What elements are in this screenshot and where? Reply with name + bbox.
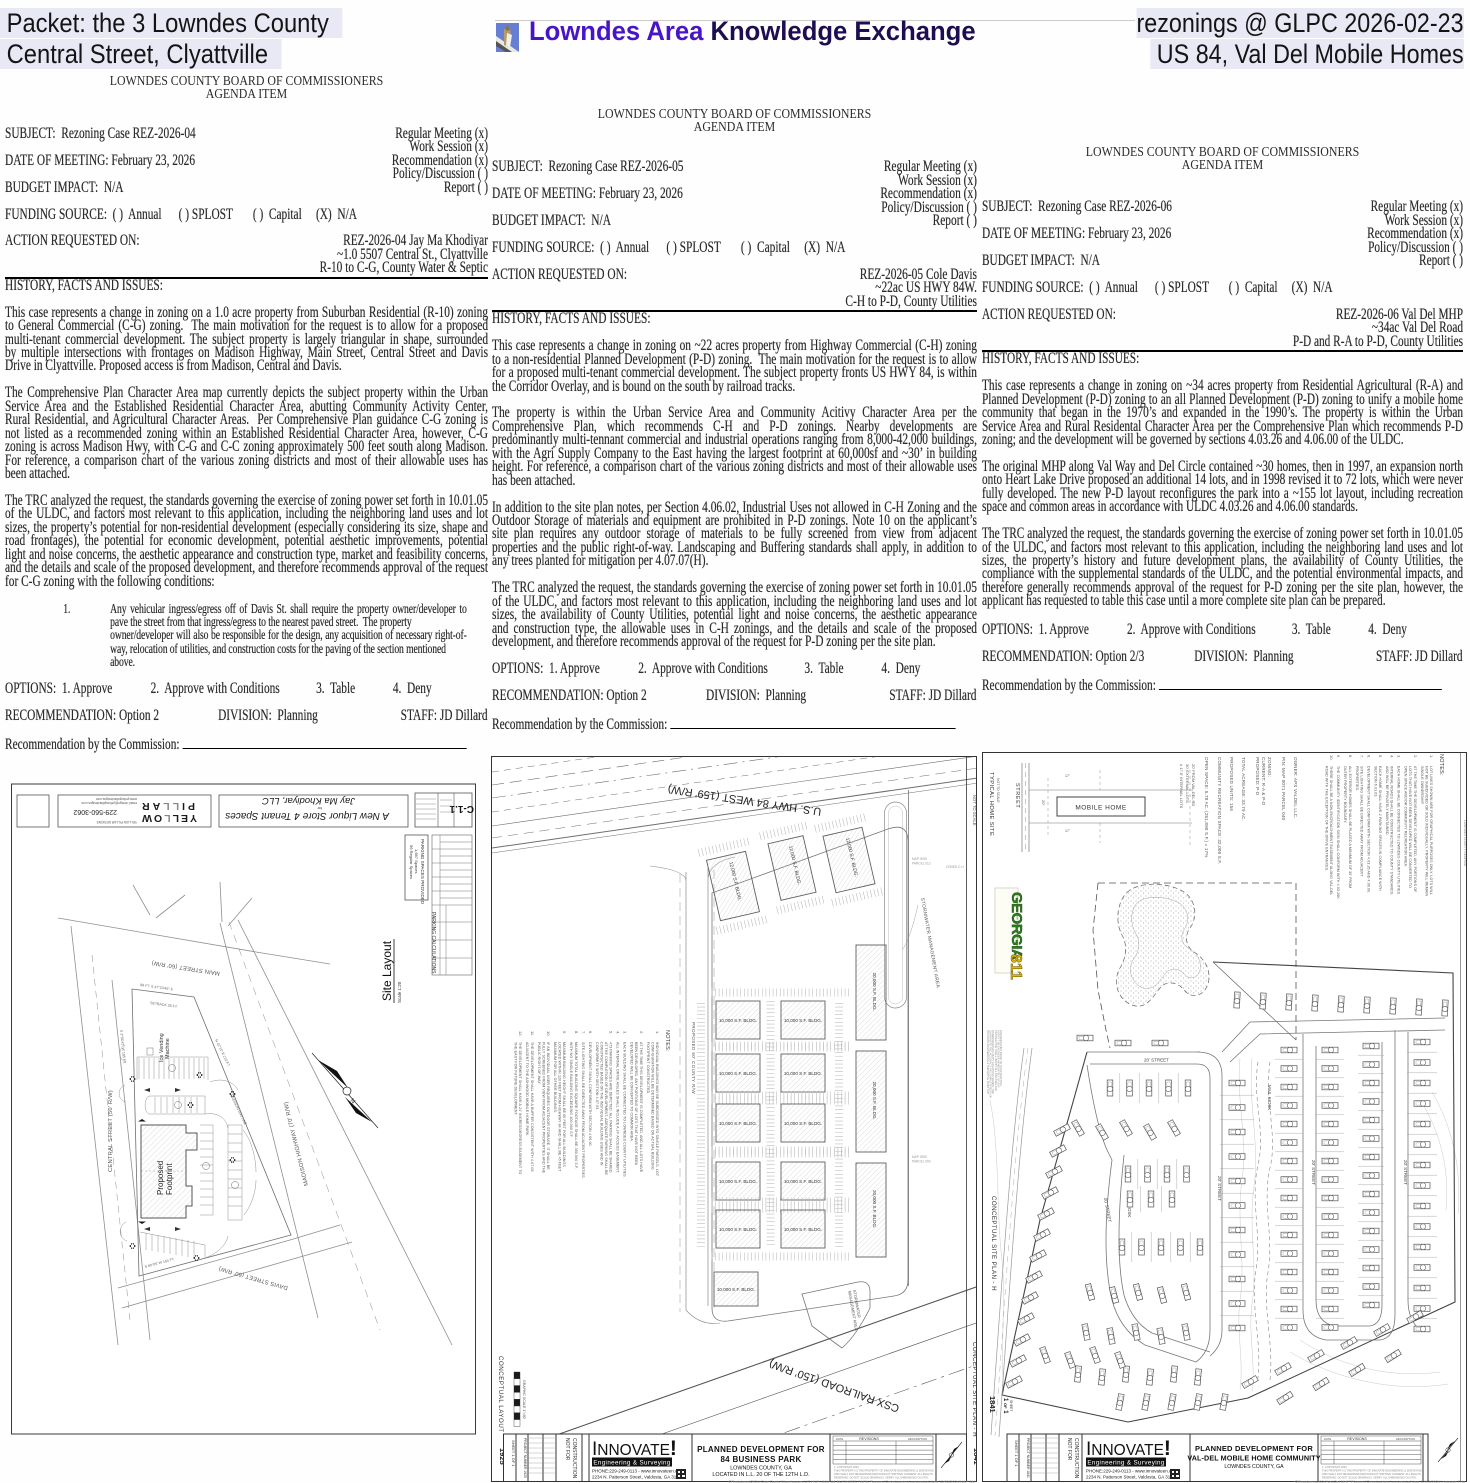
svg-text:PROJECT NUMBER 1841: PROJECT NUMBER 1841 [1026, 1438, 1030, 1478]
svg-text:30’ EXTERNAL LOTS: 30’ EXTERNAL LOTS [1185, 764, 1190, 803]
svg-text:10,000 S.F. BLDG.: 10,000 S.F. BLDG. [784, 1018, 822, 1023]
svg-text:DATE: DATE [1324, 1437, 1331, 1441]
svg-text:PROPOSED UNITS: 156: PROPOSED UNITS: 156 [1229, 757, 1234, 811]
svg-text:ADJACENT TO THE ASHWOOD MOBILE: ADJACENT TO THE ASHWOOD MOBILE HOME PARK… [525, 1042, 529, 1137]
svg-text:AT THE COMPLETION OF DEVELOPME: AT THE COMPLETION OF DEVELOPMENT, ADEQUA… [604, 1042, 608, 1176]
svg-text:OPEN SPACE AND/OR COMMUNITY RE: OPEN SPACE AND/OR COMMUNITY RECREATION A… [1404, 766, 1408, 867]
svg-text:9.: 9. [1336, 755, 1341, 758]
svg-text:2234 N. Patterson Street, Vald: 2234 N. Patterson Street, Valdosta, GA 3… [1086, 1475, 1178, 1480]
svg-text:THIS PROPERTY IS THE PROPERTY: THIS PROPERTY IS THE PROPERTY OF INNOVAT… [834, 1469, 934, 1473]
svg-text:DESCRIPTION: DESCRIPTION [1396, 1437, 1415, 1441]
svg-text:84 BUSINESS PARK: 84 BUSINESS PARK [720, 1455, 801, 1464]
svg-text:SECTION 6.01.03.: SECTION 6.01.03. [1373, 766, 1377, 798]
svg-text:MAP 0059: MAP 0059 [912, 857, 927, 861]
svg-text:GRAPHIC SCALE 1"=60': GRAPHIC SCALE 1"=60' [522, 1380, 526, 1419]
svg-text:THE EAST FOR FUTURE DEVELOPMEN: THE EAST FOR FUTURE DEVELOPMENT. [514, 1042, 518, 1116]
svg-text:10,000 S.F. BLDG.: 10,000 S.F. BLDG. [719, 1018, 757, 1023]
svg-text:17’: 17’ [1065, 829, 1070, 833]
svg-text:PROJECT NUMBER 1925: PROJECT NUMBER 1925 [523, 1438, 527, 1478]
svg-text:THE DEVELOPMENT SHALL HAVE A 2: THE DEVELOPMENT SHALL HAVE A 24' INGRESS… [518, 1042, 522, 1174]
svg-text:AND SHALL NOT BE REPRODUCED WI: AND SHALL NOT BE REPRODUCED WITHOUT WRIT… [834, 1472, 933, 1476]
svg-text:56 Regular Spaces: 56 Regular Spaces [409, 845, 414, 879]
svg-text:CONCEPTUAL LAYOUT: CONCEPTUAL LAYOUT [497, 1356, 504, 1433]
svg-text:8.: 8. [574, 1031, 579, 1034]
svg-text:PHONE:229-249-0113 - www.inn: PHONE:229-249-0113 - www.innovateen.com [592, 1469, 684, 1474]
svg-text:CONSTRUCTION: CONSTRUCTION [571, 1438, 577, 1479]
svg-text:CONFIGURATION WILL BE DETERMIN: CONFIGURATION WILL BE DETERMINED BASED O… [650, 1042, 654, 1170]
svg-text:FOOTPRINT CONSTRUCTED.: FOOTPRINT CONSTRUCTED. [646, 1042, 650, 1094]
svg-text:SHEET: SHEET [1009, 1400, 1013, 1411]
svg-text:2.: 2. [1413, 755, 1418, 758]
svg-text:# 17.5’ INTERNAL LOTS: # 17.5’ INTERNAL LOTS [1179, 764, 1184, 808]
svg-text:TYPICAL HOME SITE: TYPICAL HOME SITE [988, 772, 994, 836]
svg-text:ZONED C-H: ZONED C-H [946, 865, 964, 869]
svg-text:OPEN SPACE: 5.78 AC. (251,890: OPEN SPACE: 5.78 AC. (251,890 S.F.) = 17… [1204, 757, 1209, 858]
svg-text:EACH HOME SHALL HAVE 2 PARKING: EACH HOME SHALL HAVE 2 PARKING SPACES IN… [1378, 766, 1382, 891]
svg-text:ZONING:: ZONING: [1267, 757, 1272, 777]
svg-text:C-1.1: C-1.1 [449, 803, 474, 814]
svg-text:NOT FOR: NOT FOR [1066, 1438, 1072, 1461]
svg-text:CONFORMITY WITH SECTION 4.07.0: CONFORMITY WITH SECTION 4.07.03. [595, 1042, 599, 1110]
svg-text:9.: 9. [562, 1031, 567, 1034]
svg-text:Engineering & Surveying: Engineering & Surveying [1087, 1460, 1164, 1467]
svg-text:Machine: Machine [165, 1038, 171, 1059]
svg-text:10,000 S.F. BLDG.: 10,000 S.F. BLDG. [784, 1071, 822, 1076]
svg-text:COMMUNITY RECREATION SPACE: 32: COMMUNITY RECREATION SPACE: 32,000 S.F. [1217, 757, 1222, 864]
svg-text:4.: 4. [616, 1031, 621, 1034]
svg-text:PROPOSED 60’ COUNTY R/W: PROPOSED 60’ COUNTY R/W [691, 1022, 696, 1094]
svg-text:Scale 1:20: Scale 1:20 [397, 981, 402, 1003]
svg-text:NOT TO SCALE: NOT TO SCALE [996, 778, 1000, 803]
svg-text:Engineering & Surveying: Engineering & Surveying [593, 1460, 670, 1467]
svg-text:3.: 3. [1397, 755, 1402, 758]
svg-text:AT THE TIME THIS DEVELOPMENT I: AT THE TIME THIS DEVELOPMENT IS COMPLETE… [639, 1042, 643, 1173]
svg-text:10,000 S.F. BLDG.: 10,000 S.F. BLDG. [717, 1287, 755, 1292]
svg-text:5.: 5. [609, 1031, 614, 1034]
svg-text:10,000 S.F. BLDG.: 10,000 S.F. BLDG. [719, 1227, 757, 1232]
svg-text:LOT LINES SHOWN ARE FOR GRAPHI: LOT LINES SHOWN ARE FOR GRAPHICAL PURPOS… [1429, 766, 1433, 895]
svg-text:Jay Ma Khodiyar, LLC: Jay Ma Khodiyar, LLC [262, 795, 356, 806]
svg-text:10.: 10. [546, 1031, 551, 1037]
svg-text:NOT FOR: NOT FOR [564, 1438, 570, 1461]
svg-text:A New Liquor Store 4 Tenant Sp: A New Liquor Store 4 Tenant Spaces [225, 810, 390, 821]
svg-text:AND SHALL NOT BE REPRODUCED WI: AND SHALL NOT BE REPRODUCED WITHOUT WRIT… [1322, 1472, 1421, 1476]
svg-text:CONCEPTUAL SITE PLAN - H: CONCEPTUAL SITE PLAN - H [990, 1196, 997, 1291]
svg-text:NOTES:: NOTES: [1438, 754, 1444, 776]
svg-text:10,000 S.F. BLDG.: 10,000 S.F. BLDG. [784, 1179, 822, 1184]
svg-text:SITE LIGHTING SHALL BE DIRECTE: SITE LIGHTING SHALL BE DIRECTED AWAY FRO… [1359, 766, 1363, 877]
svg-text:THIS PROPERTY IS THE PROPERTY: THIS PROPERTY IS THE PROPERTY OF INNOVAT… [1322, 1469, 1422, 1473]
svg-text:LOTS THAT HAVE NOT BEEN DEVELO: LOTS THAT HAVE NOT BEEN DEVELOPED WILL B… [1408, 766, 1412, 888]
svg-text:LOWNDES COUNTY, GA: LOWNDES COUNTY, GA [730, 1466, 792, 1472]
svg-text:PLANNED DEVELOPMENT FOR: PLANNED DEVELOPMENT FOR [697, 1445, 825, 1454]
svg-text:7.: 7. [581, 1031, 586, 1034]
svg-text:LOWNDES COUNTY, GA: LOWNDES COUNTY, GA [1224, 1464, 1284, 1470]
svg-text:ROAD WITH THE EXCEPTION OF THE: ROAD WITH THE EXCEPTION OF THE DRIVE ENT… [1325, 766, 1329, 871]
svg-text:1.: 1. [655, 1031, 660, 1034]
svg-text:12.: 12. [518, 1031, 523, 1037]
svg-text:PARKING SPACES PROVIDED: PARKING SPACES PROVIDED [420, 839, 425, 905]
svg-text:www.yellowpillardesigns.com: www.yellowpillardesigns.com [96, 797, 137, 801]
svg-text:DEVELOPMENT SHALL CONFORM WITH: DEVELOPMENT SHALL CONFORM WITH SECTION 4… [588, 1042, 592, 1147]
svg-text:PROPERTIES.: PROPERTIES. [1355, 766, 1359, 791]
svg-text:4.: 4. [1390, 755, 1395, 758]
svg-text:ALL INTERNAL DRIVE AISLES SHAL: ALL INTERNAL DRIVE AISLES SHALL INCLUDE … [616, 1042, 620, 1173]
svg-text:OUTER PROPERTY BOUNDARY.: OUTER PROPERTY BOUNDARY. [1343, 766, 1347, 823]
svg-text:MOBILE HOME: MOBILE HOME [1075, 805, 1127, 812]
svg-text:AND WILL BE PRIVATELY MAINTAIN: AND WILL BE PRIVATELY MAINTAINED. [1385, 766, 1389, 836]
svg-text:PARCEL 090: PARCEL 090 [912, 1160, 931, 1164]
svg-text:EACH BUILDING SHALL BE CONNECT: EACH BUILDING SHALL BE CONNECTED TO LOWN… [623, 1042, 627, 1178]
svg-text:20’ STREET: 20’ STREET [1144, 1058, 1169, 1063]
svg-text:6.: 6. [1366, 755, 1371, 758]
svg-text:STREET: STREET [1014, 783, 1020, 808]
svg-text:1. COPYRIGHT 2024: 1. COPYRIGHT 2024 [1322, 1465, 1347, 1469]
svg-text:PLANNED DEVELOPMENT FOR: PLANNED DEVELOPMENT FOR [1195, 1444, 1313, 1453]
svg-text:YELLOW: YELLOW [140, 812, 197, 824]
svg-text:7.: 7. [1359, 755, 1364, 758]
svg-text:3.: 3. [623, 1031, 628, 1034]
svg-text:Know what’s below. Call before: Know what’s below. Call before you dig. [1016, 894, 1020, 947]
svg-text:PILLAR: PILLAR [139, 800, 195, 812]
svg-text:20,000 S.F. BLDG.: 20,000 S.F. BLDG. [872, 973, 877, 1011]
svg-text:PIN: MAP 0071 PARCEL 040: PIN: MAP 0071 PARCEL 040 [1281, 757, 1286, 821]
svg-text:20’: 20’ [1041, 800, 1046, 805]
svg-text:SHEET 1 OF 1: SHEET 1 OF 1 [511, 1440, 516, 1467]
svg-text:NOT BE SUBDIVIDED OR SOLD INDI: NOT BE SUBDIVIDED OR SOLD INDIVIDUALLY. … [1424, 766, 1428, 896]
svg-text:FULLY SCREENED FROM VIEW FROM: FULLY SCREENED FROM VIEW FROM ADJACENT P… [541, 1042, 545, 1174]
svg-text:©Registered2024 Val-Del MHP Pl: ©Registered2024 Val-Del MHP Planned Deve… [1295, 1479, 1465, 1483]
svg-text:1841: 1841 [972, 1448, 980, 1465]
svg-text:ALL EXTERIOR HOMES SHALL BE PL: ALL EXTERIOR HOMES SHALL BE PLACED A MIN… [1348, 766, 1352, 888]
svg-text:IF AN INDIVIDUAL USER REQUIRES: IF AN INDIVIDUAL USER REQUIRES OUTDOOR S… [546, 1042, 550, 1170]
svg-text:10,000 S.F. BLDG.: 10,000 S.F. BLDG. [719, 1121, 757, 1126]
svg-text:AT THE TIME THE DEVELOPMENT IS: AT THE TIME THE DEVELOPMENT IS COMPLETED… [1413, 766, 1417, 893]
svg-text:Footprint: Footprint [165, 1163, 174, 1195]
svg-text:20,000 S.F. BLDG.: 20,000 S.F. BLDG. [872, 1190, 877, 1228]
svg-text:THERE SHALL BE A NON-ENCROACHM: THERE SHALL BE A NON-ENCROACHMENT EASEME… [1329, 766, 1333, 895]
svg-text:10.: 10. [1329, 755, 1334, 761]
svg-text:YELLOW PILLAR DESIGNS: YELLOW PILLAR DESIGNS [97, 820, 137, 824]
svg-text:MAP 0059: MAP 0059 [912, 1155, 927, 1159]
svg-text:6.: 6. [588, 1031, 593, 1034]
svg-text:10,000 S.F. BLDG.: 10,000 S.F. BLDG. [784, 1227, 822, 1232]
svg-text:1.: 1. [1429, 755, 1434, 758]
svg-text:VAL-DEL MOBILE HOME COMMUNITY: VAL-DEL MOBILE HOME COMMUNITY [1187, 1454, 1320, 1463]
svg-text:5.: 5. [1378, 755, 1383, 758]
svg-text:OWNER: APS VALDEL LLC.: OWNER: APS VALDEL LLC. [1293, 757, 1298, 819]
svg-text:BEEN DEVELOPED, ANY PORTIONS O: BEEN DEVELOPED, ANY PORTIONS OF LOTS THA… [634, 1042, 638, 1166]
svg-text:Proposed: Proposed [156, 1161, 165, 1195]
svg-text:LOCATED WITHIN 120 FEET FROM H: LOCATED WITHIN 120 FEET FROM HIGHWAY 84 … [558, 1042, 562, 1172]
svg-text:SITE LIGHTING SHALL BE DIRECTE: SITE LIGHTING SHALL BE DIRECTED AWAY FRO… [581, 1042, 585, 1179]
svg-text:20,000 S.F. BLDG.: 20,000 S.F. BLDG. [872, 1082, 877, 1120]
svg-text:811: 811 [1007, 954, 1024, 980]
svg-text:20’ STREET: 20’ STREET [1217, 1176, 1222, 1201]
svg-text:©Registered2024 Cole Davis War: ©Registered2024 Cole Davis Warehouses US… [728, 1479, 975, 1483]
svg-text:CENTRAL STREET (50' R/W): CENTRAL STREET (50' R/W) [108, 1090, 114, 1172]
svg-text:DATE: DATE [836, 1437, 843, 1441]
svg-text:PROPOSED: P-D: PROPOSED: P-D [1255, 757, 1260, 796]
svg-text:THE DEVELOPMENT SHALL HAVE A B: THE DEVELOPMENT SHALL HAVE A BUFFER CONS… [530, 1042, 534, 1172]
svg-text:PARKING CALCULATIONS: PARKING CALCULATIONS [430, 912, 436, 974]
svg-text:REVISIONS: REVISIONS [859, 1437, 879, 1441]
svg-text:WITH NO SINGLE BUILDING EXCEED: WITH NO SINGLE BUILDING EXCEEDING 100,00… [569, 1042, 573, 1138]
svg-text:2.: 2. [639, 1031, 644, 1034]
svg-text:CONSTRUCTED BASED ON THE INDIV: CONSTRUCTED BASED ON THE INDIVIDUAL BUIL… [599, 1042, 603, 1166]
svg-text:473 PARKING SPACES ARE DEPICTE: 473 PARKING SPACES ARE DEPICTED. ALL PAR… [609, 1042, 613, 1174]
svg-text:10,000 S.F. BLDG.: 10,000 S.F. BLDG. [784, 1121, 822, 1126]
svg-text:20’ FROM VAL-DEL RD: 20’ FROM VAL-DEL RD [1191, 764, 1196, 806]
svg-text:DISCREPANCIES PRIOR TO CONSTRU: DISCREPANCIES PRIOR TO CONSTRUCTION. [999, 1030, 1003, 1087]
svg-text:DESCRIPTION: DESCRIPTION [908, 1437, 927, 1441]
svg-text:MAIL KIOSK: MAIL KIOSK [1267, 1085, 1272, 1110]
svg-text:LOCATED IN L.L. 20 OF THE 12TH: LOCATED IN L.L. 20 OF THE 12TH L.D. [712, 1472, 809, 1478]
svg-text:229-560-3062: 229-560-3062 [73, 808, 117, 815]
svg-text:CONSTRUCTION: CONSTRUCTION [1073, 1438, 1079, 1479]
svg-text:PARCEL 012: PARCEL 012 [912, 862, 931, 866]
svg-text:SHEET 1 OF 1: SHEET 1 OF 1 [1014, 1440, 1019, 1467]
svg-text:MAXIMUM BUILDING HEIGHT SHALL: MAXIMUM BUILDING HEIGHT SHALL BE 60 FEET… [562, 1042, 566, 1167]
svg-text:11.: 11. [530, 1031, 535, 1036]
svg-text:NOTES:: NOTES: [664, 1030, 670, 1052]
svg-text:EACH HOME SHALL BE CONNECTED T: EACH HOME SHALL BE CONNECTED TO LOWNDES … [1397, 766, 1401, 895]
svg-text:INTERNAL ROADS SHALL BE CONSTR: INTERNAL ROADS SHALL BE CONSTRUCTED TO C… [1390, 766, 1394, 895]
svg-text:Site Layout: Site Layout [380, 940, 394, 1001]
svg-text:10,000 S.F. BLDG.: 10,000 S.F. BLDG. [719, 1071, 757, 1076]
svg-text:TOTAL ACREAGE: 33.79 AC.: TOTAL ACREAGE: 33.79 AC. [1241, 757, 1246, 821]
svg-text:DEVELOPMENT SHALL CONFORM WITH: DEVELOPMENT SHALL CONFORM WITH SECTION 4… [1366, 766, 1370, 893]
svg-text:8.: 8. [1348, 755, 1353, 758]
svg-text:THE COMMUNITY IDENTIFICATION S: THE COMMUNITY IDENTIFICATION SIGN SHALL … [1336, 766, 1340, 900]
svg-text:1841: 1841 [988, 1396, 997, 1413]
svg-text:2234 N. Patterson Street, Vald: 2234 N. Patterson Street, Valdosta, GA 3… [592, 1475, 684, 1480]
svg-text:17’: 17’ [1065, 774, 1070, 778]
svg-text:MAXIMUM FOR ALL OTHER BUILDING: MAXIMUM FOR ALL OTHER BUILDINGS. [553, 1042, 557, 1113]
svg-text:REVISIONS: REVISIONS [1347, 1437, 1367, 1441]
svg-text:PHONE:229-249-0113 - www.inn: PHONE:229-249-0113 - www.innovateen.com [1086, 1469, 1178, 1474]
svg-text:20’ STREET: 20’ STREET [1311, 1160, 1316, 1185]
svg-text:CURRENT: R-A & P-D: CURRENT: R-A & P-D [1261, 757, 1266, 806]
svg-text:INDIVIDUAL BUILDINGS MAY BE SU: INDIVIDUAL BUILDINGS MAY BE SUBDIVIDED I… [655, 1042, 659, 1177]
svg-text:1. COPYRIGHT 2024: 1. COPYRIGHT 2024 [834, 1465, 859, 1469]
svg-text:MAXIMUM TOTAL BUILDING SQUARE: MAXIMUM TOTAL BUILDING SQUARE FOOTAGE SH… [574, 1042, 578, 1169]
svg-text:PUBLIC RIGHT-OF-WAY.: PUBLIC RIGHT-OF-WAY. [537, 1042, 541, 1085]
svg-text:SINGLE OWNERSHIP.: SINGLE OWNERSHIP. [1420, 766, 1424, 805]
svg-text:20’ STREET: 20’ STREET [1403, 1160, 1408, 1185]
svg-text:10,000 S.F. BLDG.: 10,000 S.F. BLDG. [719, 1179, 757, 1184]
svg-text:DEVELOPED WILL BE CONVERTED TO: DEVELOPED WILL BE CONVERTED TO COMMON AR… [630, 1042, 634, 1142]
